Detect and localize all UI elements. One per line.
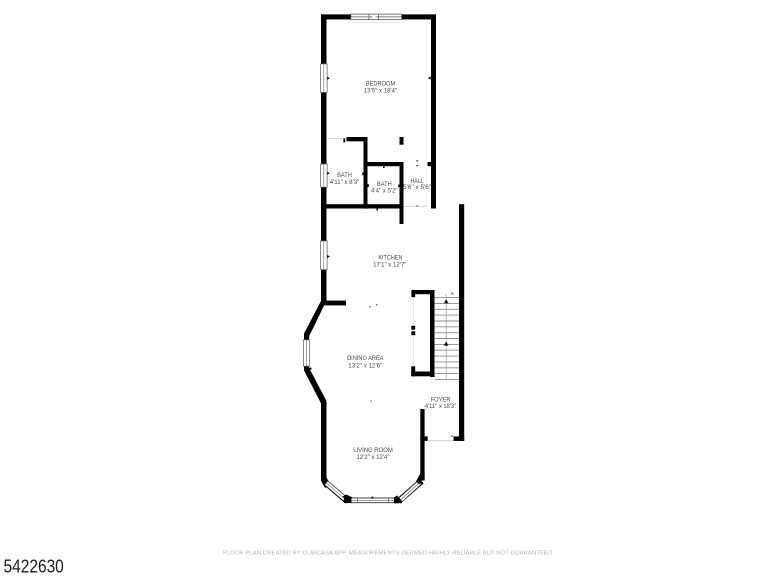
svg-text:DINING AREA: DINING AREA [347,356,383,362]
svg-text:FLOOR PLAN CREATED BY CUBICASA: FLOOR PLAN CREATED BY CUBICASA APP. MEAS… [223,550,554,556]
svg-text:5'6" x 5'6": 5'6" x 5'6" [403,185,431,191]
svg-text:4'4" x 5'2": 4'4" x 5'2" [371,189,398,195]
svg-text:BATH: BATH [377,182,392,188]
svg-text:BEDROOM: BEDROOM [366,82,396,88]
svg-text:13'5" x 18'4": 13'5" x 18'4" [364,89,398,95]
svg-text:5422630: 5422630 [4,556,64,576]
svg-text:KITCHEN: KITCHEN [378,255,402,261]
svg-text:4'11" x 18'3": 4'11" x 18'3" [425,404,456,410]
svg-text:LIVING ROOM: LIVING ROOM [353,448,393,454]
svg-text:FOYER: FOYER [431,397,451,403]
svg-text:17'1" x 12'7": 17'1" x 12'7" [373,262,406,268]
svg-text:12'2" x 12'4": 12'2" x 12'4" [357,455,390,461]
svg-text:13'2" x 12'6": 13'2" x 12'6" [348,364,382,370]
svg-text:4'11" x 8'3": 4'11" x 8'3" [330,180,360,186]
svg-text:BATH: BATH [337,173,352,179]
